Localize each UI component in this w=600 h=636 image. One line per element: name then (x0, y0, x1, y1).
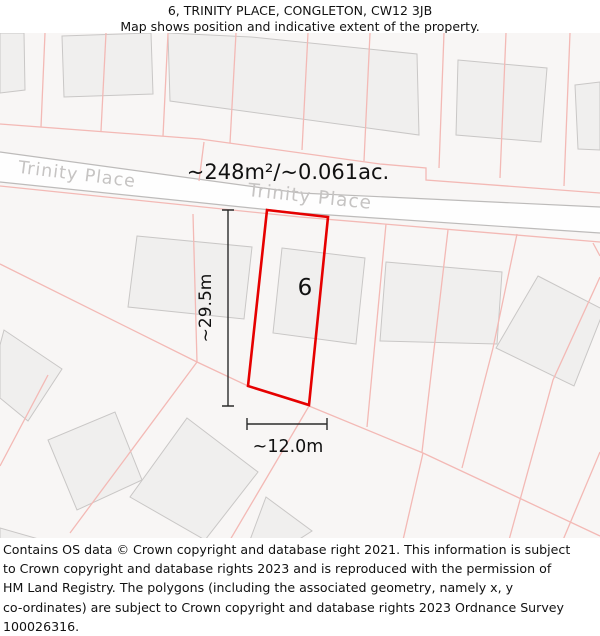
building (380, 262, 502, 344)
height-dimension-label: ~29.5m (196, 274, 216, 343)
building (575, 82, 600, 150)
building (62, 33, 153, 97)
copyright-line: 100026316. (3, 617, 600, 636)
area-label: ~248m²/~0.061ac. (187, 160, 389, 184)
width-dimension-label: ~12.0m (253, 437, 324, 457)
copyright-line: Contains OS data © Crown copyright and d… (3, 540, 600, 559)
copyright-line: HM Land Registry. The polygons (includin… (3, 578, 600, 597)
copyright-line: to Crown copyright and database rights 2… (3, 559, 600, 578)
property-map: Trinity Place Trinity Place ~248m²/~0.06… (0, 0, 600, 625)
copyright-notice: Contains OS data © Crown copyright and d… (3, 540, 600, 636)
building (0, 33, 25, 93)
plot-number-label: 6 (298, 275, 313, 301)
copyright-line: co-ordinates) are subject to Crown copyr… (3, 598, 600, 617)
building (128, 236, 252, 319)
